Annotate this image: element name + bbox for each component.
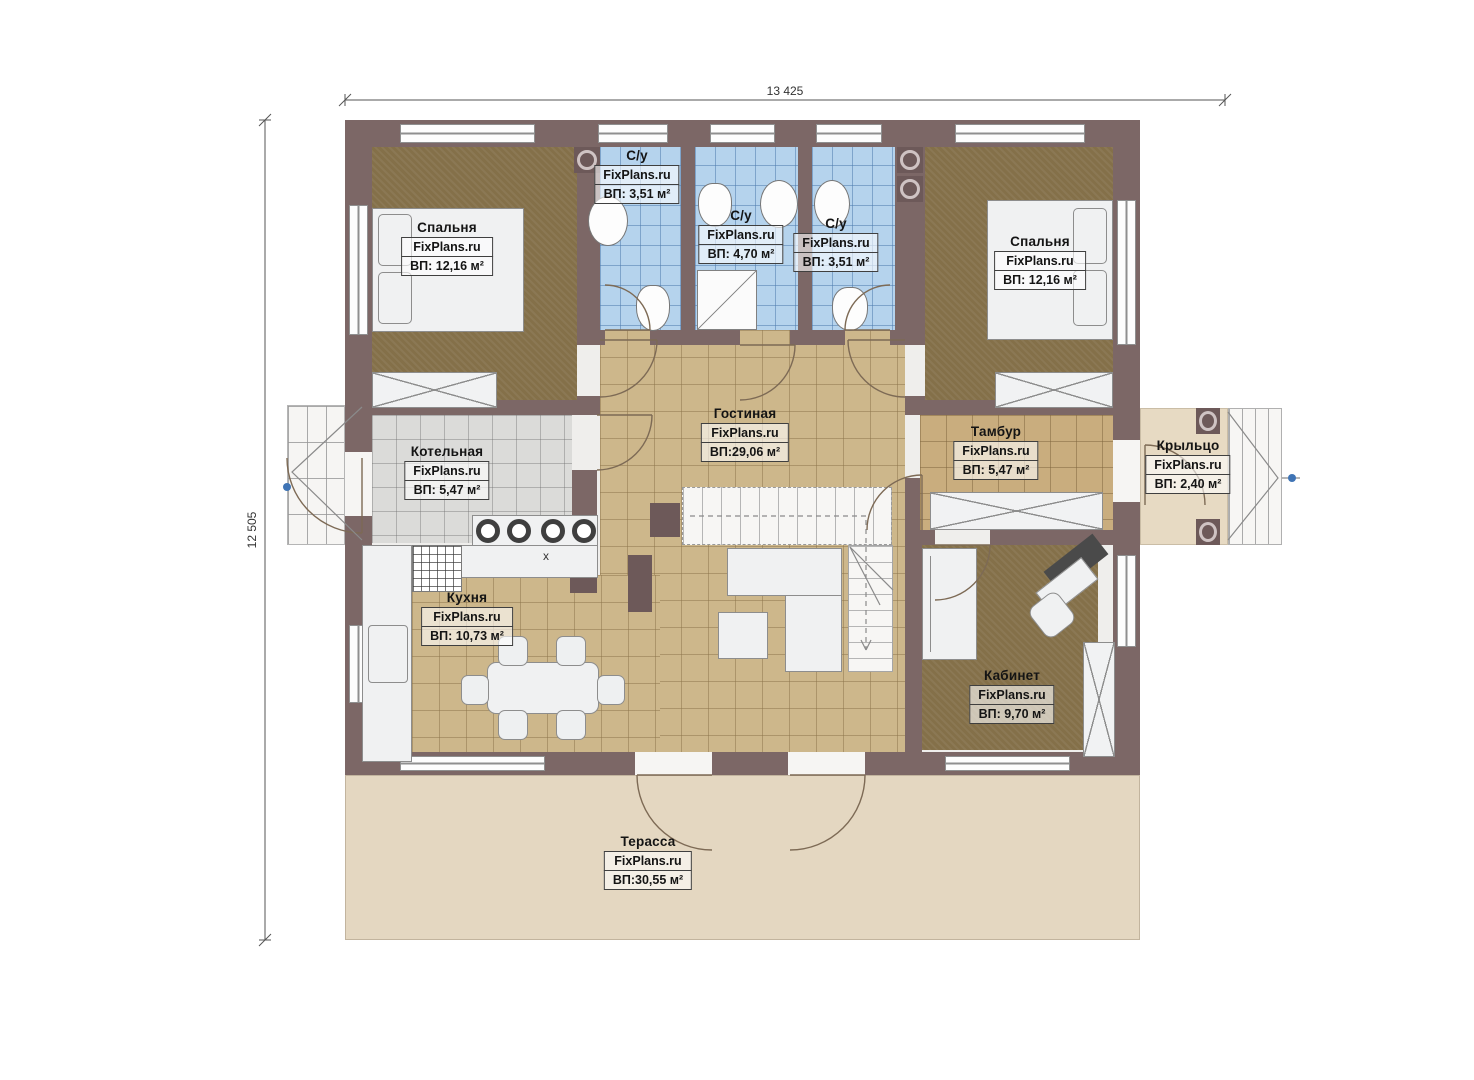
room-area: ВП:30,55 м² [604, 870, 692, 890]
room-area: ВП: 5,47 м² [404, 480, 489, 500]
wall-office-top-a [905, 530, 935, 545]
chimney-block-c [650, 503, 680, 537]
porch-steps [1228, 408, 1282, 545]
floor-plan: x [0, 0, 1474, 1080]
washing-machine-2 [897, 147, 923, 173]
counter-mark: x [543, 549, 549, 563]
bath3-toilet [832, 287, 868, 331]
room-brand: FixPlans.ru [1145, 455, 1230, 475]
wall-office-top-b [990, 530, 1140, 545]
room-label-bath-1: С/у FixPlans.ru ВП: 3,51 м² [594, 148, 679, 204]
room-name: Спальня [994, 234, 1086, 249]
room-name: Крыльцо [1145, 438, 1230, 453]
window-top-3 [710, 124, 775, 143]
wardrobe-bedroom-left [372, 372, 497, 408]
room-label-bedroom-right: Спальня FixPlans.ru ВП: 12,16 м² [994, 234, 1086, 290]
room-label-kitchen: Кухня FixPlans.ru ВП: 10,73 м² [421, 590, 513, 646]
room-name: С/у [698, 208, 783, 223]
dimension-top-label: 13 425 [767, 84, 804, 98]
left-porch-steps [287, 405, 345, 545]
room-label-bedroom-left: Спальня FixPlans.ru ВП: 12,16 м² [401, 220, 493, 276]
wall-office-left [905, 545, 922, 762]
room-name: Гостиная [701, 406, 789, 421]
window-bottom-1 [400, 756, 545, 771]
room-brand: FixPlans.ru [604, 851, 692, 871]
room-name: С/у [594, 148, 679, 163]
bath2-shower [697, 270, 757, 330]
door-opening-porch-right [1113, 440, 1140, 502]
chimney-block-b [628, 555, 652, 612]
dimension-left-label: 12 505 [245, 512, 259, 549]
bed-left-pillow-2 [378, 272, 412, 324]
room-label-terrace: Терасса FixPlans.ru ВП:30,55 м² [604, 834, 692, 890]
room-brand: FixPlans.ru [994, 251, 1086, 271]
room-area: ВП: 9,70 м² [969, 704, 1054, 724]
wall-under-bath-3 [790, 330, 845, 345]
chair-left [461, 675, 489, 705]
porch-post-bottom [1196, 519, 1220, 545]
window-top-4 [816, 124, 882, 143]
room-label-living: Гостиная FixPlans.ru ВП:29,06 м² [701, 406, 789, 462]
room-brand: FixPlans.ru [953, 441, 1038, 461]
wardrobe-vestibule [930, 492, 1103, 530]
room-area: ВП: 10,73 м² [421, 626, 513, 646]
window-top-5 [955, 124, 1085, 143]
bath1-toilet [636, 285, 670, 331]
room-name: Кабинет [969, 668, 1054, 683]
room-area: ВП:29,06 м² [701, 442, 789, 462]
room-brand: FixPlans.ru [594, 165, 679, 185]
room-brand: FixPlans.ru [698, 225, 783, 245]
door-opening-terrace-left [635, 752, 712, 775]
room-terrace-floor [345, 775, 1140, 940]
room-brand: FixPlans.ru [701, 423, 789, 443]
stairs-upper-flight [682, 487, 892, 545]
room-label-boiler: Котельная FixPlans.ru ВП: 5,47 м² [404, 444, 489, 500]
window-top-2 [598, 124, 668, 143]
room-area: ВП: 2,40 м² [1145, 474, 1230, 494]
room-brand: FixPlans.ru [421, 607, 513, 627]
door-opening-terrace-right [788, 752, 865, 775]
room-label-bath-3: С/у FixPlans.ru ВП: 3,51 м² [793, 216, 878, 272]
stairs-lower-flight [848, 545, 893, 672]
room-name: С/у [793, 216, 878, 231]
room-name: Терасса [604, 834, 692, 849]
burner-2 [507, 519, 531, 543]
room-label-office: Кабинет FixPlans.ru ВП: 9,70 м² [969, 668, 1054, 724]
room-area: ВП: 12,16 м² [401, 256, 493, 276]
room-label-bath-2: С/у FixPlans.ru ВП: 4,70 м² [698, 208, 783, 264]
porch-post-top [1196, 408, 1220, 434]
wardrobe-office [1083, 642, 1115, 757]
window-top-1 [400, 124, 535, 143]
kitchen-sink [368, 625, 408, 683]
room-area: ВП: 3,51 м² [793, 252, 878, 272]
wall-stub-right-door [905, 396, 925, 415]
wardrobe-bedroom-right [995, 372, 1113, 408]
sofa-vertical [785, 595, 842, 672]
room-name: Кухня [421, 590, 513, 605]
burner-4 [572, 519, 596, 543]
room-brand: FixPlans.ru [969, 685, 1054, 705]
chair-bottom-1 [498, 710, 528, 740]
room-name: Спальня [401, 220, 493, 235]
wall-bath1-bath2 [681, 145, 695, 330]
chair-right [597, 675, 625, 705]
dining-table [487, 662, 599, 714]
chair-top-2 [556, 636, 586, 666]
room-area: ВП: 5,47 м² [953, 460, 1038, 480]
wall-under-bath-2 [650, 330, 740, 345]
coffee-table [718, 612, 768, 659]
room-area: ВП: 3,51 м² [594, 184, 679, 204]
room-brand: FixPlans.ru [401, 237, 493, 257]
chair-bottom-2 [556, 710, 586, 740]
washing-machine-3 [897, 176, 923, 202]
sofa-horizontal [727, 548, 842, 596]
room-brand: FixPlans.ru [404, 461, 489, 481]
room-label-vestibule: Тамбур FixPlans.ru ВП: 5,47 м² [953, 424, 1038, 480]
burner-1 [476, 519, 500, 543]
room-brand: FixPlans.ru [793, 233, 878, 253]
window-right-2 [1117, 555, 1136, 647]
door-opening-left-porch [345, 452, 372, 516]
wall-under-bath-4 [890, 330, 925, 345]
window-bottom-2 [945, 756, 1070, 771]
window-right-1 [1117, 200, 1136, 345]
window-left-1 [349, 205, 368, 335]
room-label-porch: Крыльцо FixPlans.ru ВП: 2,40 м² [1145, 438, 1230, 494]
room-name: Тамбур [953, 424, 1038, 439]
room-name: Котельная [404, 444, 489, 459]
wall-stub-left-door [577, 396, 600, 415]
office-sofa-cushion [930, 556, 969, 652]
room-area: ВП: 12,16 м² [994, 270, 1086, 290]
burner-3 [541, 519, 565, 543]
wall-under-bath-1 [577, 330, 605, 345]
gas-stove [412, 545, 462, 592]
room-area: ВП: 4,70 м² [698, 244, 783, 264]
